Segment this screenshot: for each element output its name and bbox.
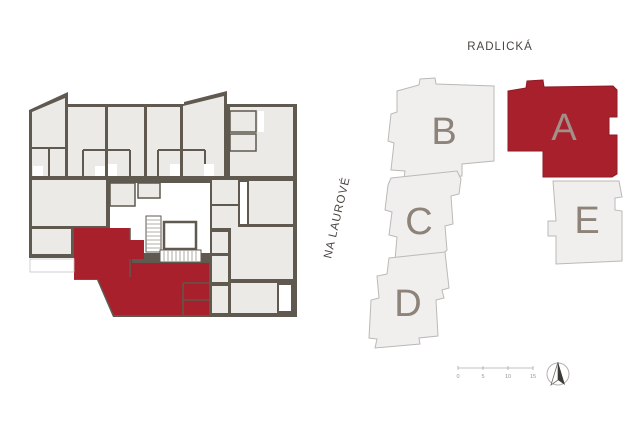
- room-small: [212, 256, 228, 282]
- north-arrow-icon: [547, 362, 569, 385]
- building-b-label: B: [431, 111, 456, 153]
- balcony-door: [170, 164, 180, 176]
- room-small: [110, 183, 135, 206]
- building-e-label: E: [574, 200, 599, 242]
- room: [32, 229, 71, 254]
- room-small: [212, 286, 228, 313]
- floor-plan: [24, 84, 300, 322]
- building-d-label: D: [394, 283, 421, 325]
- scale-bar-line: [458, 366, 533, 370]
- room: [32, 180, 106, 226]
- room: [231, 283, 277, 313]
- elevator-shaft: [164, 222, 196, 249]
- scale-tick-0: 0: [456, 374, 459, 380]
- balcony-door: [33, 166, 43, 176]
- building-c-label: C: [405, 201, 432, 243]
- street-label-na-laurove: NA LAUROVÉ: [321, 175, 352, 259]
- stair-flight-vertical: [146, 216, 161, 252]
- site-plan: RADLICKÁ NA LAUROVÉ B A C D E 0 5 10 15: [315, 30, 631, 392]
- room: [183, 96, 224, 176]
- light-well: [240, 182, 247, 224]
- building-b[interactable]: B: [388, 78, 494, 186]
- balcony: [279, 285, 291, 311]
- building-d[interactable]: D: [369, 252, 449, 348]
- room-small: [230, 111, 256, 132]
- street-label-radlicka: RADLICKÁ: [467, 40, 533, 53]
- scale-tick-10: 10: [505, 374, 511, 380]
- scale-tick-15: 15: [530, 374, 536, 380]
- building-c[interactable]: C: [385, 171, 461, 260]
- balcony-door: [95, 166, 105, 176]
- room: [212, 180, 238, 204]
- room-small: [212, 232, 228, 253]
- building-a[interactable]: A: [508, 80, 617, 177]
- building-a-label: A: [551, 107, 577, 149]
- light-well: [258, 111, 264, 132]
- room-small: [138, 183, 160, 198]
- room: [68, 107, 105, 176]
- room: [212, 206, 238, 228]
- scale-tick-5: 5: [481, 374, 484, 380]
- terrace-outline: [30, 259, 74, 272]
- balcony-door: [204, 164, 214, 176]
- balcony-door: [108, 164, 117, 176]
- room: [249, 181, 293, 224]
- room-small: [230, 134, 256, 151]
- scale-bar: 0 5 10 15: [456, 366, 536, 380]
- building-e[interactable]: E: [548, 181, 622, 264]
- room: [231, 227, 293, 279]
- stair-flight-horizontal: [160, 250, 201, 262]
